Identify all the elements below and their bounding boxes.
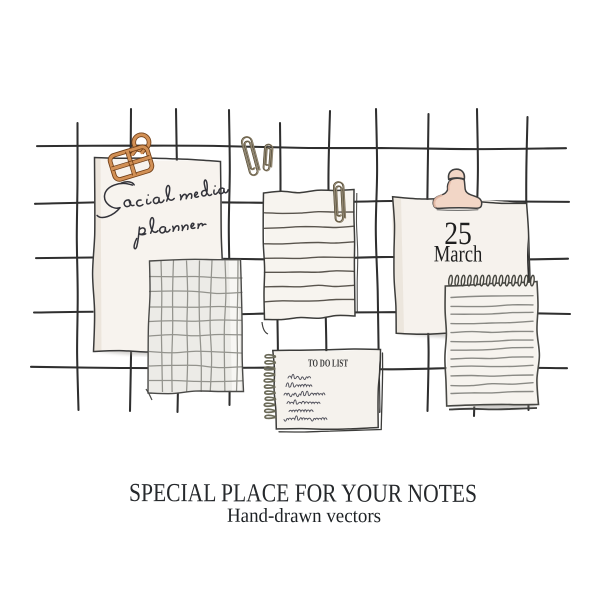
svg-text:TO DO LIST: TO DO LIST: [308, 358, 348, 369]
svg-text:SPECIAL PLACE FOR YOUR NOTES: SPECIAL PLACE FOR YOUR NOTES: [129, 478, 477, 508]
svg-text:Hand-drawn vectors: Hand-drawn vectors: [227, 505, 381, 527]
svg-text:March: March: [434, 241, 483, 267]
